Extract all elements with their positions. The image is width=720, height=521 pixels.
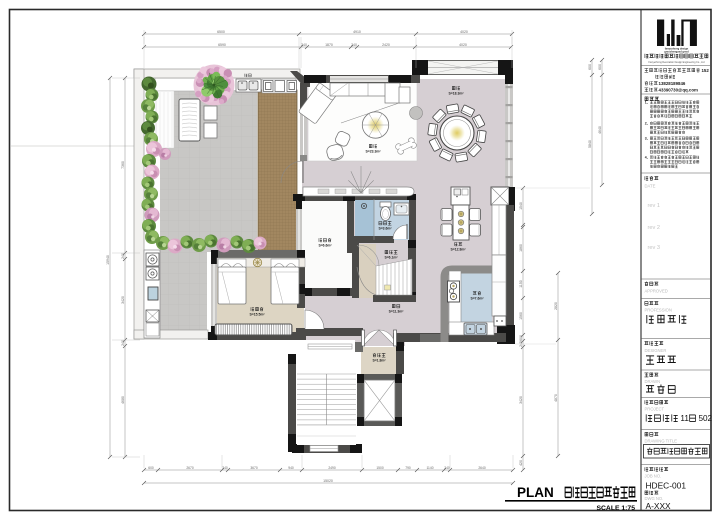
svg-text:6590: 6590: [218, 43, 226, 47]
svg-text:1860: 1860: [519, 244, 523, 252]
svg-text:15020: 15020: [323, 479, 333, 483]
svg-text:240: 240: [121, 253, 125, 259]
svg-text:940: 940: [288, 466, 294, 470]
svg-text:600: 600: [598, 64, 602, 70]
svg-text:S=6.6m²: S=6.6m²: [318, 244, 332, 248]
svg-text:240: 240: [444, 466, 450, 470]
svg-text:gnoizhengyad gnod: gnoizhengyad gnod: [664, 49, 689, 53]
svg-text:PROJECT: PROJECT: [645, 407, 665, 412]
svg-text:15940: 15940: [106, 255, 110, 265]
svg-text:2670: 2670: [186, 466, 194, 470]
svg-text:1140: 1140: [426, 466, 433, 470]
svg-text:Fanyezhong Decoration Design E: Fanyezhong Decoration Design Engineering…: [649, 61, 706, 64]
svg-text:S=15.5m²: S=15.5m²: [250, 313, 266, 317]
svg-text:600: 600: [519, 335, 523, 341]
svg-text:6500: 6500: [217, 30, 225, 34]
svg-text:2490: 2490: [328, 466, 336, 470]
svg-text:13828189846: 13828189846: [659, 81, 686, 86]
svg-text:3420: 3420: [519, 396, 523, 404]
svg-text:5840: 5840: [588, 140, 592, 148]
svg-text:S=12.8m²: S=12.8m²: [451, 248, 467, 252]
svg-text:4020: 4020: [460, 30, 468, 34]
svg-text:APPROVED: APPROVED: [645, 289, 668, 294]
svg-text:4、: 4、: [645, 156, 650, 160]
svg-text:HDEC-001: HDEC-001: [646, 481, 687, 491]
svg-text:1540: 1540: [519, 202, 523, 210]
svg-text:rev 1: rev 1: [648, 203, 660, 209]
svg-text:4870: 4870: [554, 394, 558, 402]
svg-text:1150: 1150: [519, 280, 523, 288]
svg-text:S=6.1m²: S=6.1m²: [384, 256, 398, 260]
svg-text:4680: 4680: [121, 396, 125, 404]
svg-text:S=3.6m²: S=3.6m²: [378, 227, 392, 231]
svg-text:600: 600: [148, 466, 154, 470]
svg-text:PROFESSION: PROFESSION: [645, 308, 672, 313]
svg-text:7360: 7360: [121, 161, 125, 169]
svg-text:SCALE 1:75: SCALE 1:75: [596, 505, 635, 512]
svg-text:790: 790: [405, 466, 411, 470]
svg-text:43390730@qq.com: 43390730@qq.com: [659, 88, 699, 93]
svg-text:DATE: DATE: [645, 184, 656, 189]
svg-text:PLAN: PLAN: [517, 485, 554, 500]
svg-text:3420: 3420: [121, 296, 125, 304]
svg-text:S=7.6m²: S=7.6m²: [470, 297, 484, 301]
svg-text:DESIGNER: DESIGNER: [645, 348, 667, 353]
svg-text:420: 420: [519, 460, 523, 466]
svg-text:502: 502: [698, 414, 712, 423]
svg-text:9: 9: [669, 74, 672, 79]
svg-text:DRAWING TITLE: DRAWING TITLE: [645, 439, 678, 444]
svg-text:4910: 4910: [353, 30, 361, 34]
svg-text:3670: 3670: [250, 466, 258, 470]
svg-text:1870: 1870: [325, 43, 333, 47]
svg-text:JOB NO.: JOB NO.: [645, 474, 662, 479]
svg-text:240: 240: [222, 466, 228, 470]
svg-text:1500: 1500: [376, 466, 384, 470]
svg-text:4640: 4640: [598, 126, 602, 134]
svg-text:S=1.8m²: S=1.8m²: [372, 359, 386, 363]
svg-text:rev 2: rev 2: [648, 225, 660, 231]
svg-text:3、: 3、: [645, 137, 650, 141]
svg-text:2640: 2640: [478, 466, 486, 470]
svg-text:A-XXX: A-XXX: [646, 501, 672, 511]
svg-text:rev 3: rev 3: [648, 245, 660, 251]
svg-text:4020: 4020: [459, 43, 467, 47]
svg-text:240: 240: [121, 340, 125, 346]
svg-text:152: 152: [701, 68, 709, 73]
svg-text:2、: 2、: [645, 122, 650, 126]
svg-text:1、: 1、: [645, 101, 650, 105]
svg-text:DRAWN: DRAWN: [645, 379, 661, 384]
svg-text:S=23.3m²: S=23.3m²: [366, 150, 382, 154]
svg-text:240: 240: [301, 43, 307, 47]
svg-text:S=18.3m²: S=18.3m²: [449, 92, 465, 96]
svg-text:2820: 2820: [554, 302, 558, 310]
svg-text:240: 240: [351, 43, 357, 47]
svg-text:11: 11: [680, 414, 689, 423]
svg-text:2420: 2420: [382, 43, 390, 47]
svg-text:1560: 1560: [519, 312, 523, 320]
svg-text:S=11.3m²: S=11.3m²: [389, 310, 405, 314]
svg-text:600: 600: [588, 64, 592, 70]
